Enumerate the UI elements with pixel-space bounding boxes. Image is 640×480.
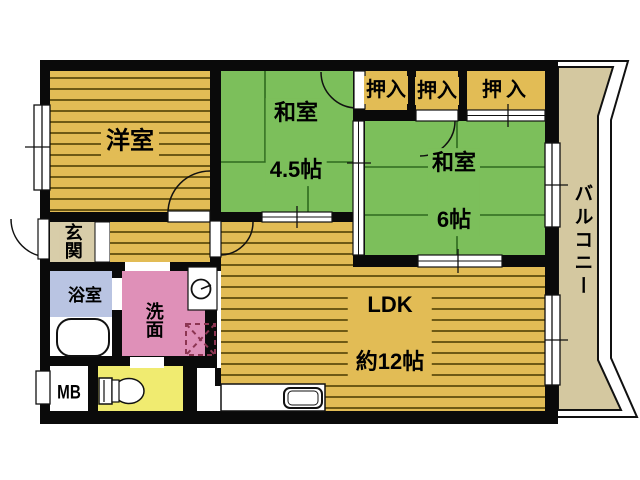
label-western-room: 洋室 [101,124,159,157]
ldk-floor-west [221,222,353,411]
label-bath: 浴室 [66,285,104,307]
entrance-step [95,222,110,262]
label-entrance: 玄関 [59,223,84,259]
label-meter-box: MB [56,382,81,407]
service-gap [197,368,215,411]
western-room-window [25,105,50,190]
label-closet-1: 押入 [364,76,408,104]
bath-door [112,278,122,310]
label-jp45-room: 和室 4.5帖 [266,98,327,186]
kitchen-counter [221,384,325,411]
label-closet-2: 押入 [415,77,459,105]
floor-plan: 洋室 和室 4.5帖 押入 押入 押入 和室 6帖 LDK 約12帖 バルコニー… [0,0,640,480]
washbasin-icon [188,267,217,310]
toilet-door [130,357,164,368]
label-jp6-room: 和室 6帖 [428,148,480,236]
toilet-icon [99,378,144,404]
label-balcony: バルコニー [569,182,594,301]
entrance-door [11,219,49,259]
label-closet-3: 押入 [480,76,532,104]
floor-plan-drawing [0,0,640,480]
washroom-opening [125,262,170,271]
label-washroom: 洗面 [141,301,164,339]
bathtub-icon [57,319,109,356]
meter-box-vent [36,371,50,404]
hallway-floor [110,222,210,262]
label-ldk: LDK 約12帖 [348,289,432,379]
